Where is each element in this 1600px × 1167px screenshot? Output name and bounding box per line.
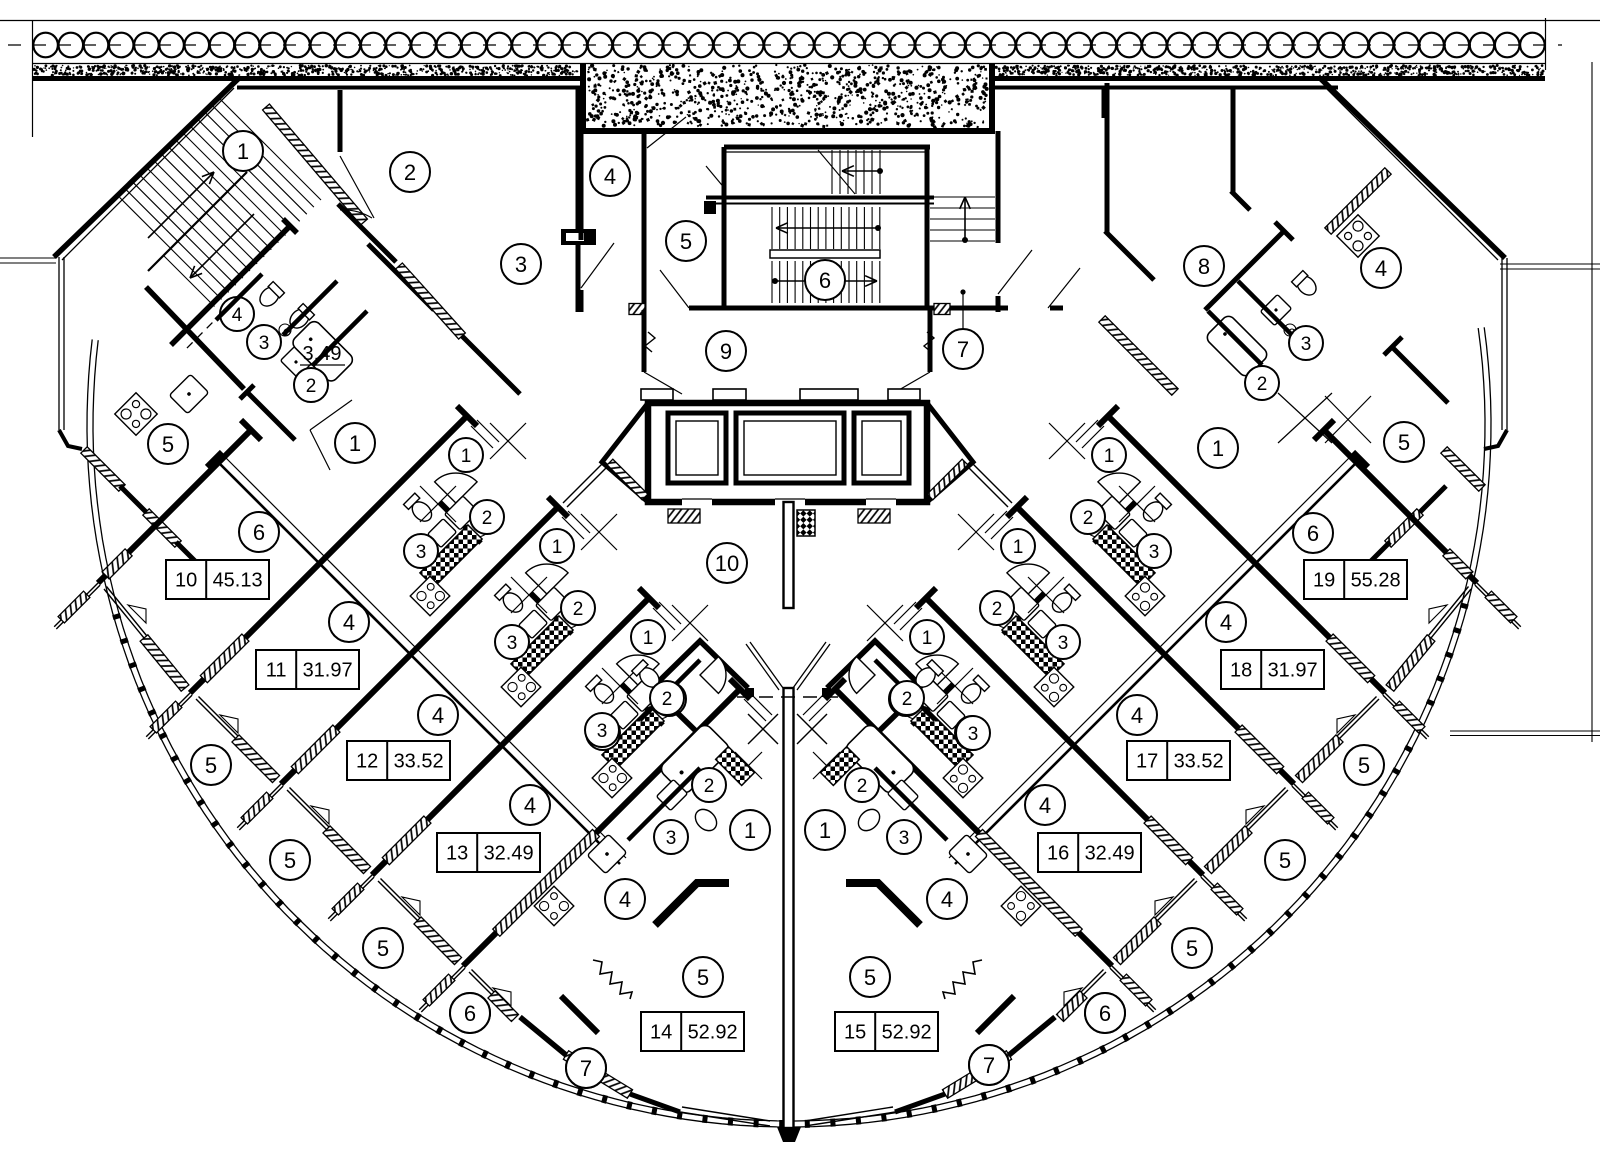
svg-text:18: 18 — [1230, 660, 1252, 682]
svg-text:55.28: 55.28 — [1351, 570, 1401, 592]
svg-text:4: 4 — [1131, 703, 1143, 728]
svg-text:2: 2 — [404, 160, 416, 185]
svg-text:1: 1 — [349, 431, 361, 456]
svg-text:14: 14 — [650, 1022, 672, 1044]
svg-text:1: 1 — [922, 628, 933, 649]
svg-text:11: 11 — [266, 660, 287, 682]
svg-text:5: 5 — [697, 965, 709, 990]
svg-text:2: 2 — [573, 599, 584, 620]
svg-text:3: 3 — [1301, 334, 1312, 355]
svg-text:5: 5 — [205, 753, 217, 778]
svg-text:16: 16 — [1047, 843, 1069, 865]
svg-text:19: 19 — [1313, 570, 1335, 592]
svg-text:6: 6 — [1099, 1001, 1111, 1026]
svg-text:33.52: 33.52 — [394, 751, 444, 773]
svg-text:4: 4 — [1039, 793, 1051, 818]
svg-text:5: 5 — [1186, 936, 1198, 961]
svg-text:3: 3 — [968, 724, 979, 745]
svg-text:4: 4 — [232, 305, 243, 326]
svg-text:4: 4 — [604, 164, 616, 189]
svg-text:2: 2 — [992, 599, 1003, 620]
svg-text:7: 7 — [957, 337, 969, 362]
svg-text:15: 15 — [844, 1022, 866, 1044]
svg-text:5: 5 — [864, 965, 876, 990]
svg-text:31.97: 31.97 — [1268, 660, 1318, 682]
svg-text:1: 1 — [461, 446, 472, 467]
svg-text:1: 1 — [744, 818, 756, 843]
svg-text:5: 5 — [1279, 848, 1291, 873]
svg-text:2: 2 — [306, 376, 317, 397]
svg-text:3: 3 — [507, 633, 518, 654]
svg-text:2: 2 — [857, 776, 868, 797]
svg-text:5: 5 — [284, 848, 296, 873]
svg-text:12: 12 — [356, 751, 378, 773]
svg-text:6: 6 — [464, 1001, 476, 1026]
svg-text:2: 2 — [662, 689, 673, 710]
svg-text:3: 3 — [1058, 633, 1069, 654]
svg-text:45.13: 45.13 — [213, 570, 263, 592]
svg-text:3: 3 — [899, 828, 910, 849]
svg-text:5: 5 — [1358, 753, 1370, 778]
svg-text:4: 4 — [524, 793, 536, 818]
svg-text:5: 5 — [1398, 430, 1410, 455]
svg-text:1: 1 — [1013, 537, 1024, 558]
svg-text:2: 2 — [1257, 374, 1268, 395]
svg-text:4: 4 — [1220, 610, 1232, 635]
svg-text:6: 6 — [819, 268, 831, 293]
svg-text:32.49: 32.49 — [1085, 843, 1135, 865]
svg-text:6: 6 — [1307, 521, 1319, 546]
svg-text:32.49: 32.49 — [484, 843, 534, 865]
svg-text:6: 6 — [253, 520, 265, 545]
svg-text:2: 2 — [704, 776, 715, 797]
svg-text:4: 4 — [343, 610, 355, 635]
svg-text:1: 1 — [819, 818, 831, 843]
svg-text:7: 7 — [580, 1056, 592, 1081]
svg-text:9: 9 — [720, 339, 732, 364]
svg-text:5: 5 — [680, 229, 692, 254]
svg-text:3: 3 — [259, 333, 270, 354]
svg-text:5: 5 — [162, 432, 174, 457]
svg-text:10: 10 — [715, 551, 739, 576]
svg-text:3: 3 — [416, 542, 427, 563]
svg-text:17: 17 — [1136, 751, 1158, 773]
svg-text:3: 3 — [1149, 542, 1160, 563]
svg-text:1: 1 — [643, 628, 654, 649]
svg-text:33.52: 33.52 — [1174, 751, 1224, 773]
svg-text:1: 1 — [1104, 446, 1115, 467]
svg-text:4: 4 — [432, 703, 444, 728]
svg-text:10: 10 — [175, 570, 197, 592]
svg-text:31.97: 31.97 — [303, 660, 353, 682]
svg-text:3: 3 — [597, 721, 608, 742]
svg-text:13: 13 — [446, 843, 468, 865]
svg-text:4: 4 — [1375, 256, 1387, 281]
svg-text:4: 4 — [619, 887, 631, 912]
svg-text:3: 3 — [515, 252, 527, 277]
svg-text:7: 7 — [983, 1053, 995, 1078]
svg-text:1: 1 — [237, 139, 249, 164]
svg-text:3: 3 — [666, 828, 677, 849]
svg-text:1: 1 — [1212, 436, 1224, 461]
svg-text:1: 1 — [552, 537, 563, 558]
svg-text:2: 2 — [482, 508, 493, 529]
svg-text:8: 8 — [1198, 254, 1210, 279]
svg-text:4: 4 — [941, 887, 953, 912]
svg-text:52.92: 52.92 — [688, 1022, 738, 1044]
svg-text:52.92: 52.92 — [882, 1022, 932, 1044]
svg-text:2: 2 — [902, 689, 913, 710]
svg-text:2: 2 — [1083, 508, 1094, 529]
svg-text:5: 5 — [377, 936, 389, 961]
